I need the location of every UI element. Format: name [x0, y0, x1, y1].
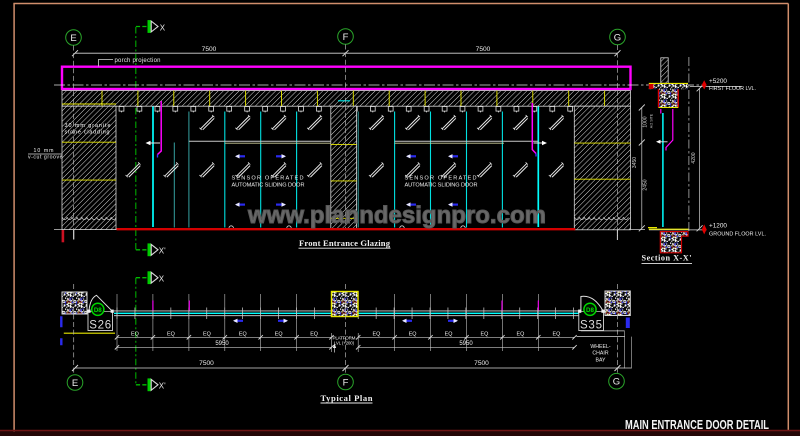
svg-text:AUTOMATIC SLIDING DOOR: AUTOMATIC SLIDING DOOR — [405, 182, 478, 188]
svg-text:EQ: EQ — [239, 331, 247, 337]
svg-text:SENSOR OPERATED: SENSOR OPERATED — [232, 176, 304, 182]
svg-text:BAY: BAY — [596, 357, 607, 363]
svg-text:EQ: EQ — [445, 331, 453, 337]
svg-text:stone cladding: stone cladding — [65, 130, 110, 136]
svg-text:5950: 5950 — [215, 341, 229, 347]
svg-text:EQ: EQ — [517, 331, 525, 337]
svg-text:4200: 4200 — [691, 152, 697, 163]
svg-text:EQ: EQ — [553, 331, 561, 337]
svg-text:CHAIR: CHAIR — [592, 351, 608, 357]
svg-text:S26: S26 — [89, 320, 111, 332]
svg-text:X: X — [160, 23, 166, 32]
svg-text:D8: D8 — [586, 307, 594, 314]
svg-text:F: F — [343, 32, 349, 43]
svg-text:X: X — [159, 275, 165, 284]
svg-text:Typical Plan: Typical Plan — [321, 393, 373, 403]
svg-text:7500: 7500 — [474, 360, 489, 367]
svg-text:Front Entrance Glazing: Front Entrance Glazing — [299, 238, 391, 248]
svg-text:LVL (+200): LVL (+200) — [334, 341, 355, 346]
svg-text:E: E — [72, 378, 78, 389]
svg-text:AUTOMATIC SLIDING DOOR: AUTOMATIC SLIDING DOOR — [232, 182, 305, 188]
svg-text:SENSOR OPERATED: SENSOR OPERATED — [405, 176, 477, 182]
svg-text:porch projection: porch projection — [115, 58, 161, 64]
svg-text:X': X' — [159, 382, 166, 391]
svg-text:30 mm granite: 30 mm granite — [65, 123, 111, 129]
svg-text:G: G — [613, 377, 620, 388]
svg-text:D8: D8 — [94, 307, 102, 314]
svg-text:S35: S35 — [580, 320, 602, 332]
svg-text:7500: 7500 — [476, 46, 491, 53]
svg-text:EQ: EQ — [275, 331, 283, 337]
svg-text:E: E — [70, 33, 76, 44]
svg-text:X': X' — [159, 247, 166, 256]
svg-text:EQ: EQ — [167, 331, 175, 337]
svg-text:FIRST FLOOR LVL.: FIRST FLOOR LVL. — [709, 86, 756, 92]
svg-text:v-cut groove: v-cut groove — [28, 154, 63, 160]
svg-text:10 mm: 10 mm — [34, 148, 54, 154]
svg-text:EQ: EQ — [481, 331, 489, 337]
svg-text:G: G — [614, 33, 621, 44]
svg-text:EQ: EQ — [310, 331, 318, 337]
svg-text:1000: 1000 — [643, 116, 649, 127]
svg-text:GROUND FLOOR LVL.: GROUND FLOOR LVL. — [709, 231, 766, 237]
svg-text:3450: 3450 — [632, 157, 638, 168]
svg-text:7500: 7500 — [199, 360, 214, 367]
svg-text:Section X-X': Section X-X' — [642, 254, 692, 263]
svg-text:+5200: +5200 — [709, 78, 727, 85]
svg-text:F: F — [343, 378, 349, 389]
svg-text:EQ: EQ — [373, 331, 381, 337]
svg-text:2450: 2450 — [643, 179, 649, 190]
svg-text:EQ: EQ — [131, 331, 139, 337]
svg-text:EQ: EQ — [409, 331, 417, 337]
svg-text:WHEEL-: WHEEL- — [590, 344, 610, 350]
svg-text:A/2 SITE: A/2 SITE — [650, 113, 654, 128]
svg-text:+1200: +1200 — [709, 223, 727, 230]
svg-text:EQ: EQ — [203, 331, 211, 337]
svg-text:5950: 5950 — [459, 341, 473, 347]
svg-text:MAIN ENTRANCE DOOR DETAIL: MAIN ENTRANCE DOOR DETAIL — [625, 417, 769, 432]
svg-text:7500: 7500 — [202, 46, 217, 53]
svg-text:www.planndesignpro.com: www.planndesignpro.com — [247, 202, 546, 229]
